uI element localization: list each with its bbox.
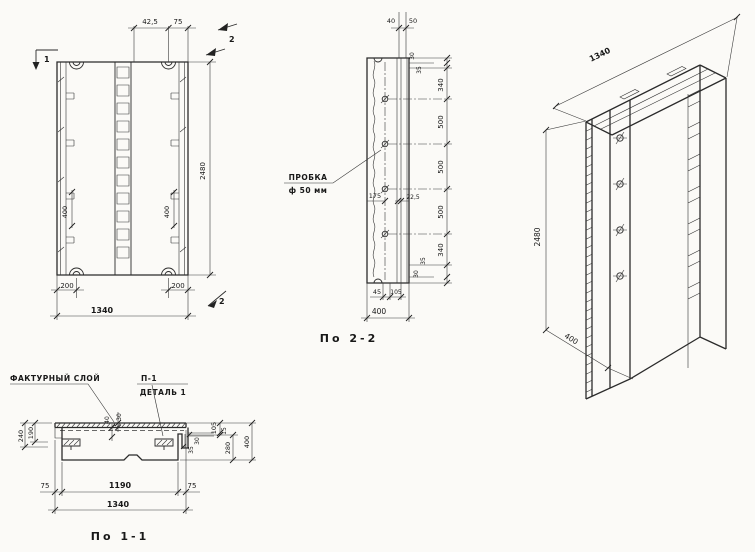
s22-dim-inner-b: 22,5 — [406, 194, 420, 201]
iso-dim-lines — [546, 17, 738, 379]
flag2b-digit: 2 — [219, 297, 225, 306]
flag2-digit: 2 — [229, 35, 235, 44]
flag1-digit: 1 — [44, 55, 50, 64]
flag2-arrow-b — [206, 48, 216, 56]
s11-dim-bottom-mid: 1190 — [109, 481, 132, 490]
iso-dim-height: 2480 — [533, 227, 542, 246]
s11-embeds — [62, 439, 173, 450]
front-panel-outline — [57, 62, 188, 275]
section-2-2-view: 40 50 30 35 340 500 500 500 340 35 30 17… — [284, 12, 452, 345]
front-ladder-rungs — [117, 67, 129, 258]
s22-dim-r6: 340 — [437, 243, 445, 256]
s11-dim-right-a: 105 — [210, 422, 218, 434]
s11-dim-mid-b: 40 — [104, 416, 111, 424]
plug-label-line2: ф 50 мм — [289, 186, 328, 195]
front-dim-width: 1340 — [91, 306, 114, 315]
s22-dim-r5: 500 — [437, 205, 445, 218]
s11-dim-right-total: 400 — [243, 436, 251, 448]
s11-title: По 1-1 — [91, 530, 149, 543]
s22-dim-r8: 30 — [413, 270, 420, 278]
s22-right-dim-column — [409, 58, 452, 283]
s11-dim-end-b: 35 — [188, 446, 195, 454]
iso-hole-ticks — [613, 132, 627, 282]
s22-loop-cuts — [374, 58, 382, 283]
s22-facing-layer-lines — [397, 58, 407, 283]
s22-dim-top-b: 50 — [409, 17, 417, 25]
s11-dim-bottom-total: 1340 — [107, 500, 130, 509]
flag1-arrow — [33, 62, 40, 70]
s11-factura-annotation: ФАКТУРНЫЙ СЛОЙ — [10, 374, 114, 422]
front-view: 42,5 75 2480 400 400 200 200 1340 1 2 2 — [33, 18, 238, 320]
s22-dim-r2: 340 — [437, 78, 445, 91]
s22-dim-bottom-a: 45 — [373, 288, 381, 296]
front-dim-hook-right: 400 — [163, 206, 171, 218]
s11-dim-bottom-right: 75 — [188, 482, 197, 490]
section-1-1-view: ФАКТУРНЫЙ СЛОЙ П-1 ДЕТАЛЬ 1 190 240 30 4… — [10, 374, 256, 543]
s22-dim-r4: 500 — [437, 160, 445, 173]
iso-panel-edges — [586, 65, 726, 399]
section-flag-1-top-left: 1 — [33, 50, 59, 70]
front-dim-top-b: 75 — [174, 18, 183, 26]
drawing-sheet: 42,5 75 2480 400 400 200 200 1340 1 2 2 — [0, 0, 755, 552]
s22-dim-inner-a: 175 — [369, 192, 381, 200]
iso-dim-depth: 400 — [563, 331, 580, 346]
s11-body-outline — [62, 428, 188, 461]
iso-plug-holes — [613, 132, 627, 282]
front-dim-height: 2480 — [199, 162, 207, 180]
s22-title: По 2-2 — [320, 332, 378, 345]
front-dim-bottom-right: 200 — [171, 282, 184, 290]
s22-dim-bottom-total: 400 — [372, 307, 387, 316]
s22-dim-r0: 30 — [409, 52, 416, 60]
s11-dim-end-a: 30 — [194, 437, 201, 445]
iso-dim-ticks — [543, 14, 740, 371]
front-dim-hook-left: 400 — [61, 206, 69, 218]
front-dim-bottom-left: 200 — [60, 282, 73, 290]
s22-dim-top-a: 40 — [387, 17, 395, 25]
s11-dim-mid-a: 30 — [116, 413, 123, 421]
panel-working-drawing: 42,5 75 2480 400 400 200 200 1340 1 2 2 — [0, 0, 755, 552]
front-lifting-loops — [70, 62, 176, 275]
s11-facing-hatch — [57, 424, 185, 428]
front-ladder-rails — [115, 62, 131, 275]
section-flag-2-bottom-right: 2 — [208, 291, 226, 308]
flag2-arrow-a — [218, 23, 228, 31]
iso-top-face-lines — [594, 69, 715, 129]
front-panel-rib-lines — [61, 62, 185, 275]
s11-dim-right-b: 15 — [221, 427, 228, 435]
detail-label: ДЕТАЛЬ 1 — [140, 388, 187, 397]
factura-label: ФАКТУРНЫЙ СЛОЙ — [10, 374, 100, 383]
iso-edge-notches — [688, 90, 700, 368]
iso-left-edge-hatch — [587, 129, 592, 393]
s11-dim-left-outer: 240 — [17, 430, 25, 442]
section-flag-2-top-right: 2 — [206, 23, 237, 56]
s22-dim-r3: 500 — [437, 115, 445, 128]
s11-dim-left-inner: 190 — [27, 427, 35, 439]
s11-dim-right-c: 280 — [224, 442, 232, 454]
plug-label-line1: ПРОБКА — [289, 173, 328, 182]
s11-dim-bottom-left: 75 — [41, 482, 50, 490]
p1-label: П-1 — [141, 374, 157, 383]
iso-dim-width: 1340 — [588, 46, 612, 64]
front-dim-lines — [50, 26, 216, 320]
s22-wavy-hatch-line — [373, 61, 375, 277]
flag2b-arrow — [208, 300, 217, 308]
iso-view: 1340 2480 400 — [533, 14, 740, 399]
factura-leader — [10, 384, 114, 422]
s22-tongue-lines — [399, 12, 406, 58]
s22-dim-r7: 35 — [420, 257, 427, 265]
s22-dim-r1: 35 — [416, 66, 423, 74]
front-dim-top-a: 42,5 — [142, 18, 158, 26]
s22-dim-bottom-b: 105 — [390, 289, 402, 296]
iso-top-slots — [620, 67, 686, 100]
